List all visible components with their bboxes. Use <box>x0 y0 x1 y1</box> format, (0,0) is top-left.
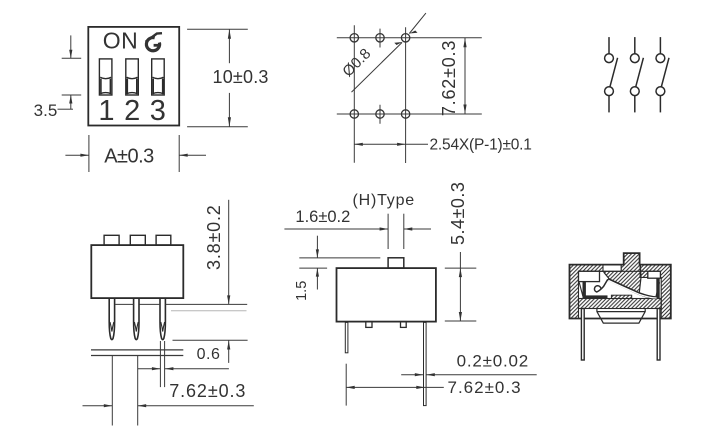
svg-text:3.8±0.2: 3.8±0.2 <box>204 204 224 270</box>
svg-text:5.4±0.3: 5.4±0.3 <box>448 182 468 245</box>
svg-text:ON: ON <box>103 28 139 54</box>
svg-text:2.54X(P-1)±0.1: 2.54X(P-1)±0.1 <box>430 137 532 154</box>
svg-text:A±0.3: A±0.3 <box>104 145 154 167</box>
svg-text:7.62±0.3: 7.62±0.3 <box>169 381 246 401</box>
svg-text:10±0.3: 10±0.3 <box>213 67 269 87</box>
svg-text:1.6±0.2: 1.6±0.2 <box>295 208 350 226</box>
svg-text:0.2±0.02: 0.2±0.02 <box>457 352 529 371</box>
svg-text:7.62±0.3: 7.62±0.3 <box>439 40 459 116</box>
svg-text:0.6: 0.6 <box>197 346 221 363</box>
svg-text:2: 2 <box>124 95 140 127</box>
svg-text:3: 3 <box>150 95 166 127</box>
svg-text:(H)Type: (H)Type <box>353 192 416 209</box>
svg-text:3.5: 3.5 <box>34 101 58 120</box>
svg-text:1.5: 1.5 <box>294 281 310 301</box>
svg-text:1: 1 <box>98 95 114 127</box>
svg-text:7.62±0.3: 7.62±0.3 <box>448 378 522 397</box>
